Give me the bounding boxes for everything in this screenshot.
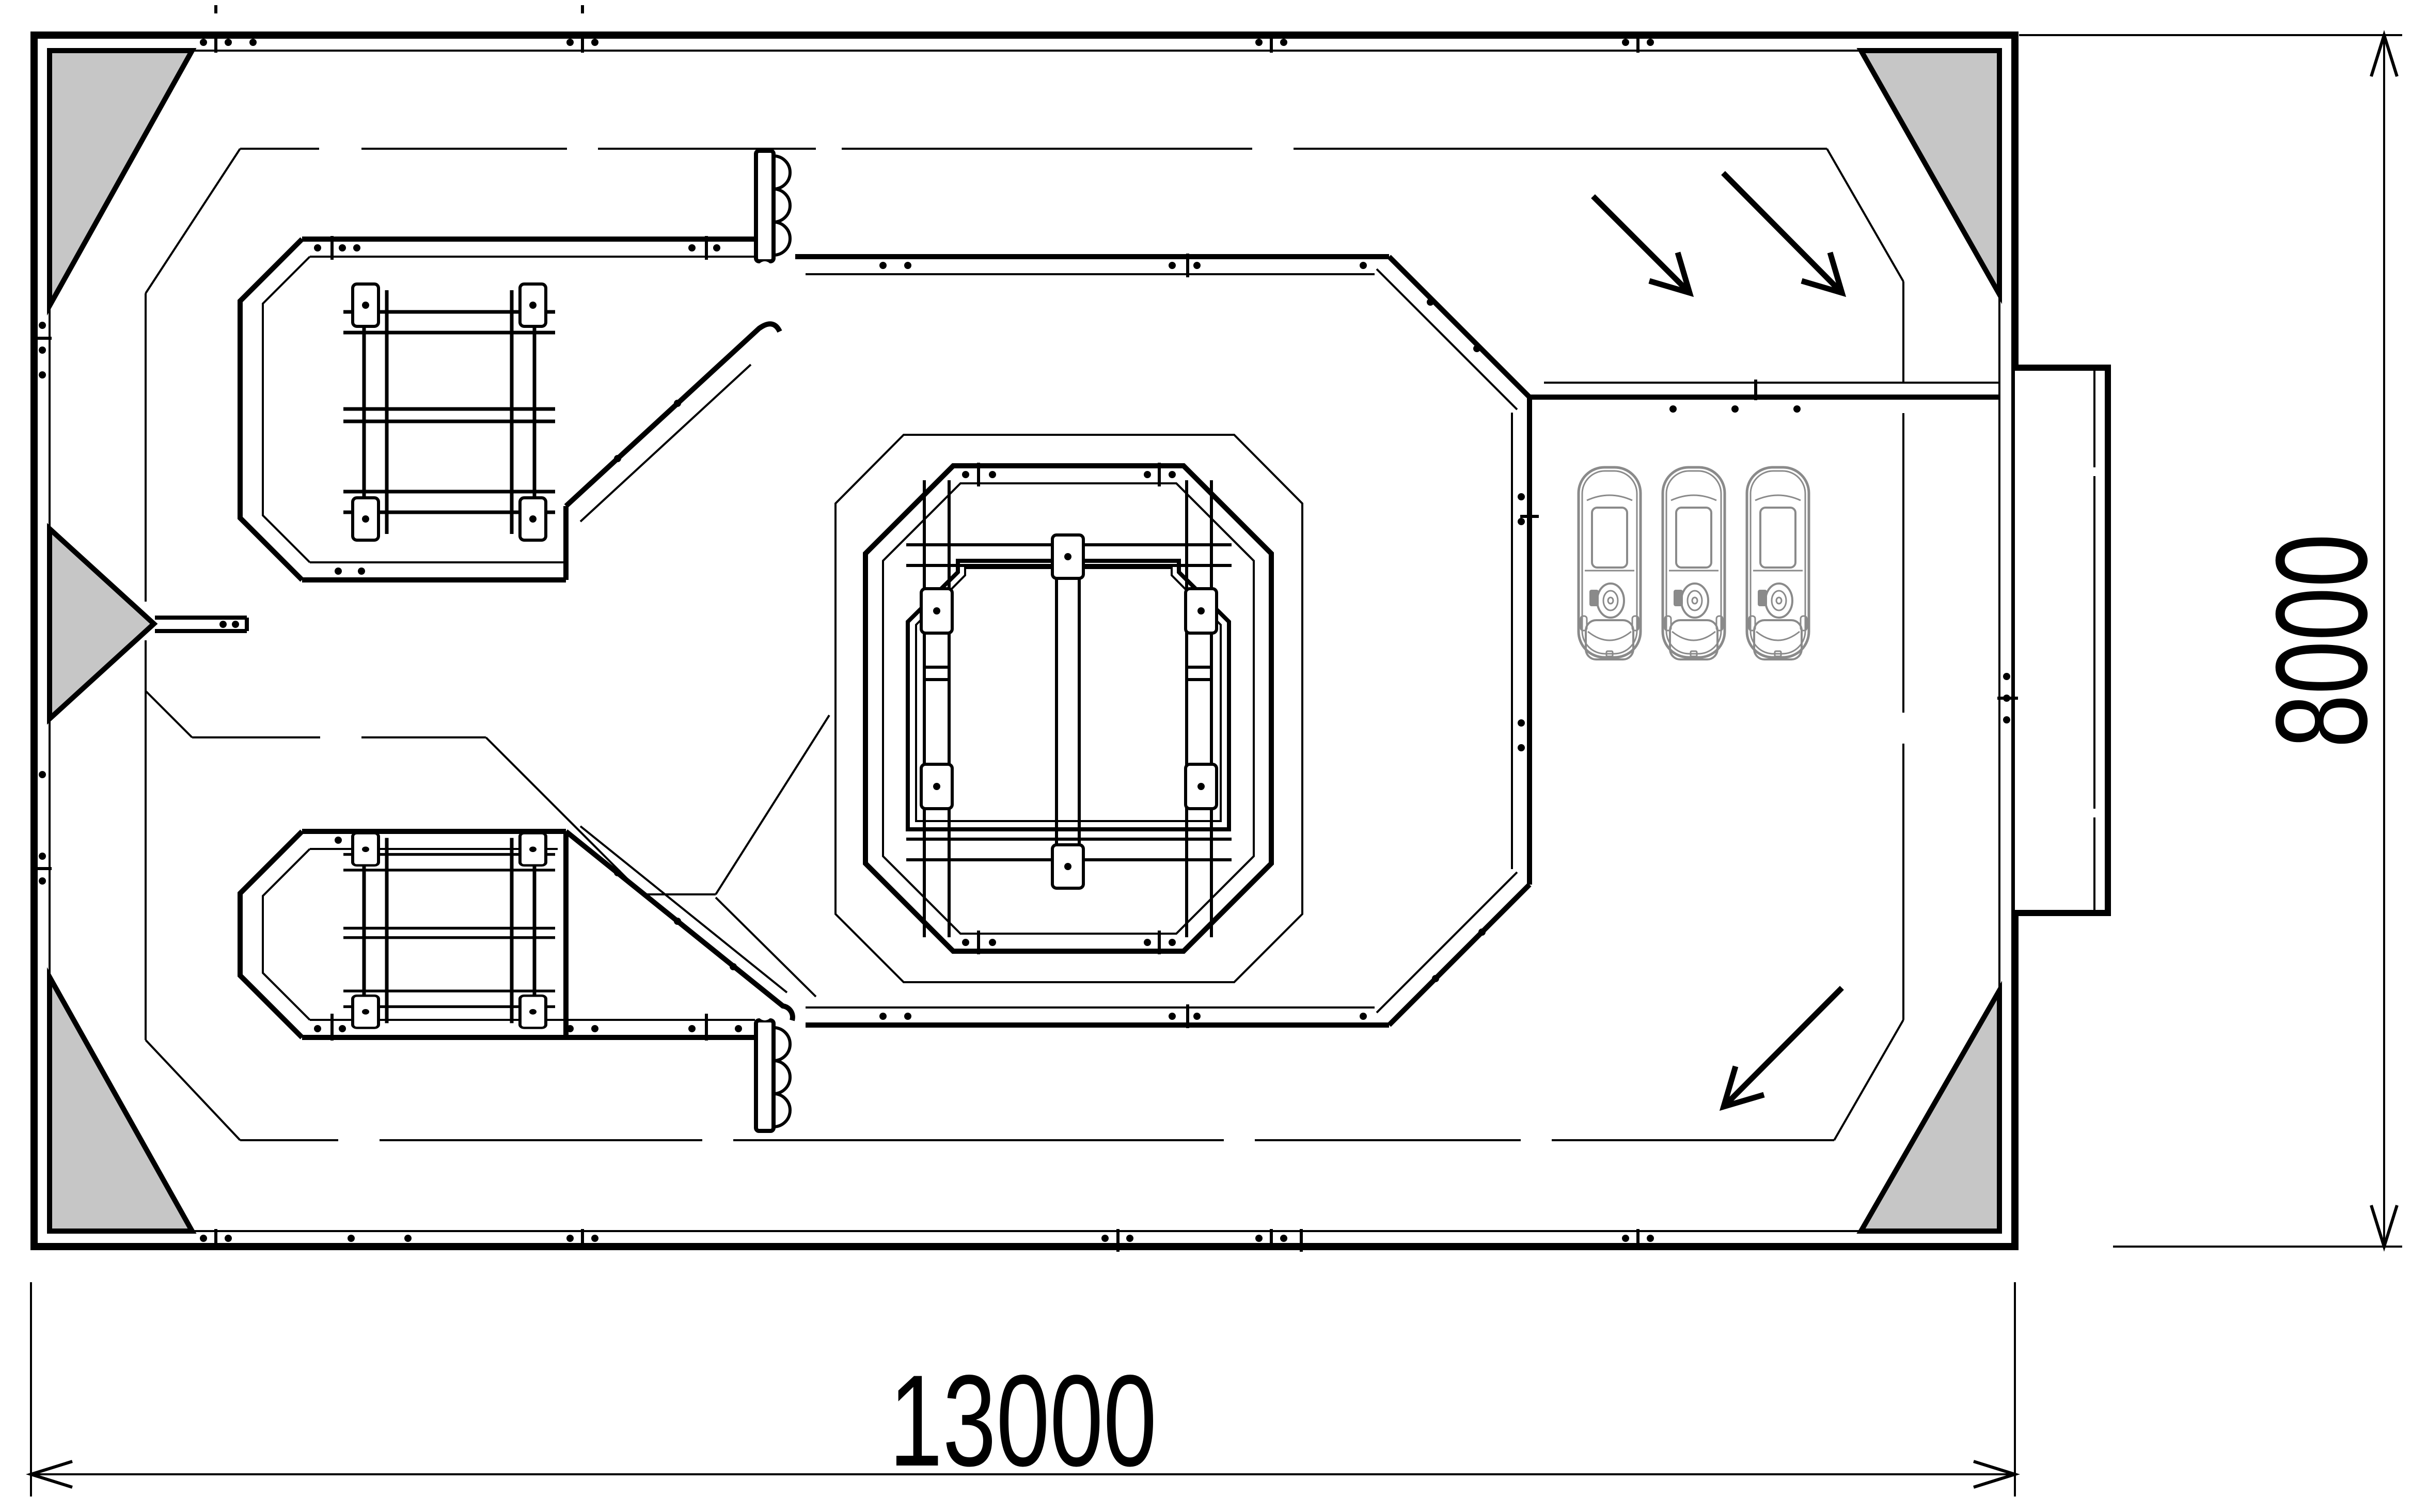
wall-bolt <box>1731 405 1739 413</box>
wall-bolt <box>1360 1013 1367 1020</box>
gate-bottom <box>756 1020 774 1131</box>
wall-bolt <box>314 1025 321 1032</box>
track-guide-line-middle <box>146 691 829 997</box>
wall-bolt <box>1473 345 1480 352</box>
gate-top-pivot <box>758 261 772 276</box>
drawing-geometry <box>31 5 2402 1497</box>
flow-arrow <box>1724 988 1842 1107</box>
wall-bolt <box>591 39 598 46</box>
wall-bolt <box>614 455 621 462</box>
wall-bolt <box>353 244 360 251</box>
gate-top-hinges <box>774 156 790 255</box>
wall-bolt <box>2003 695 2010 702</box>
track-floor-plan-drawing: 13000 8000 <box>0 0 2412 1512</box>
island1-nose-wall <box>240 239 302 580</box>
wall-bolt <box>1478 928 1486 936</box>
wall-bolt <box>358 568 365 575</box>
corner-triangle-bottom-left <box>50 977 192 1231</box>
wall-bolt <box>1518 493 1525 500</box>
wall-bolt <box>335 568 342 575</box>
wall-bolt <box>39 371 46 379</box>
wall-bolt <box>591 1025 598 1032</box>
plate-bolt <box>529 515 537 523</box>
wall-bolt <box>1432 975 1439 982</box>
machine-platform-upper <box>343 284 555 540</box>
wall-bolt <box>1793 405 1801 413</box>
plate-bolt <box>1064 863 1071 870</box>
floor-plan-page: 13000 8000 <box>0 0 2412 1512</box>
plate-bolt <box>529 1009 537 1015</box>
wall-bolt <box>713 244 720 251</box>
wall-bolt <box>1144 471 1151 478</box>
wall-bolt <box>1255 1235 1263 1242</box>
width-dimension-label: 13000 <box>889 1348 1157 1493</box>
gate-bottom-pivot <box>758 1006 772 1020</box>
wall-bolt <box>1427 298 1434 306</box>
wall-bolt <box>404 1235 412 1242</box>
wall-bolt <box>1518 719 1525 727</box>
island2-nose-wall-inner <box>263 849 310 1020</box>
wall-bolt <box>1622 39 1629 46</box>
plate-bolt <box>933 783 940 790</box>
wall-bolt <box>614 869 621 876</box>
wall-bolt <box>879 262 887 269</box>
plate-bolt <box>1197 607 1205 615</box>
wall-bolt <box>200 1235 207 1242</box>
wall-bolt <box>1360 262 1367 269</box>
island2-nose-wall <box>240 831 302 1037</box>
cwall-upper-chamfer <box>1389 257 1530 397</box>
flow-arrow <box>1593 196 1690 293</box>
wall-bolt <box>1169 262 1176 269</box>
wall-bolt <box>1280 1235 1287 1242</box>
wall-bolt <box>735 1025 742 1032</box>
wall-bolt <box>249 39 257 46</box>
wall-bolt <box>1169 1013 1176 1020</box>
flow-arrow <box>1723 173 1842 293</box>
center-machine-tub-inner <box>916 568 1221 821</box>
wall-bolt <box>566 39 574 46</box>
height-dimension-label: 8000 <box>2248 534 2394 748</box>
wall-bolt <box>200 39 207 46</box>
gate-top <box>756 151 774 261</box>
wall-bolt <box>566 1235 574 1242</box>
kart-2 <box>1663 467 1725 659</box>
wall-bolt <box>591 1235 598 1242</box>
wall-bolt <box>1169 939 1176 946</box>
plate-bolt <box>362 1009 369 1015</box>
wall-bolt <box>1101 1235 1109 1242</box>
wall-bolt <box>219 621 227 628</box>
wall-bolt <box>730 963 737 970</box>
plate-bolt <box>362 846 369 852</box>
wall-bolt <box>335 837 342 844</box>
plate-bolt <box>362 515 369 523</box>
wall-bolt <box>1169 471 1176 478</box>
plate-bolt <box>529 302 537 309</box>
cwall-lower-chamfer <box>1389 885 1530 1025</box>
corner-triangle-mid-left <box>50 529 154 719</box>
wall-bolt <box>1518 744 1525 751</box>
wall-bolt <box>688 244 696 251</box>
wall-bolt <box>879 1013 887 1020</box>
wall-bolt <box>39 322 46 329</box>
wall-bolt <box>39 346 46 354</box>
wall-bolt <box>1193 1013 1201 1020</box>
wall-bolt <box>232 621 239 628</box>
island1-diagonal-wall <box>566 324 780 506</box>
wall-bolt <box>962 471 969 478</box>
wall-bolt <box>904 1013 911 1020</box>
cwall-upper-chamfer-inner <box>1377 269 1517 409</box>
cwall-lower-chamfer-inner <box>1377 872 1517 1013</box>
wall-bolt <box>1126 1235 1133 1242</box>
wall-bolt <box>225 39 232 46</box>
plate-bolt <box>1064 553 1071 560</box>
wall-bolt <box>39 877 46 885</box>
wall-bolt <box>566 1025 574 1032</box>
island2-diagonal-wall <box>566 831 793 1020</box>
wall-bolt <box>688 1025 696 1032</box>
island1-diagonal-wall-inner <box>580 365 751 522</box>
wall-bolt <box>1669 405 1677 413</box>
wall-bolt <box>1647 39 1654 46</box>
wall-bolt <box>1193 262 1201 269</box>
wall-bolt <box>339 244 346 251</box>
wall-bolt <box>1647 1235 1654 1242</box>
kart-3 <box>1747 467 1809 659</box>
island1-nose-wall-inner <box>263 257 310 562</box>
wall-bolt <box>904 262 911 269</box>
wall-bolt <box>674 918 681 925</box>
wall-bolt <box>1622 1235 1629 1242</box>
wall-bolt <box>348 1235 355 1242</box>
wall-bolt <box>674 400 681 407</box>
wall-bolt <box>2003 716 2010 723</box>
corner-triangle-top-right <box>1861 51 1999 294</box>
wall-bolt <box>1518 518 1525 525</box>
plate-bolt <box>1197 783 1205 790</box>
island2-diagonal-wall-inner <box>580 826 787 993</box>
plate-bolt <box>362 302 369 309</box>
wall-bolt <box>962 939 969 946</box>
gate-bottom-hinges <box>774 1028 790 1127</box>
wall-bolt <box>989 939 996 946</box>
wall-bolt <box>1255 39 1263 46</box>
corner-triangle-top-left <box>50 51 192 306</box>
wall-bolt <box>225 1235 232 1242</box>
wall-bolt <box>1280 39 1287 46</box>
wall-bolt <box>339 1025 346 1032</box>
wall-bolt <box>314 244 321 251</box>
plate-bolt <box>933 607 940 615</box>
wall-bolt <box>39 853 46 860</box>
wall-bolt <box>39 771 46 778</box>
plate-bolt <box>529 846 537 852</box>
center-machine-tub <box>908 561 1229 829</box>
wall-bolt <box>989 471 996 478</box>
corner-triangle-bottom-right <box>1861 990 1999 1231</box>
kart-1 <box>1579 467 1641 659</box>
machine-platform-lower <box>343 833 555 1028</box>
wall-bolt <box>2003 673 2010 680</box>
wall-bolt <box>1144 939 1151 946</box>
